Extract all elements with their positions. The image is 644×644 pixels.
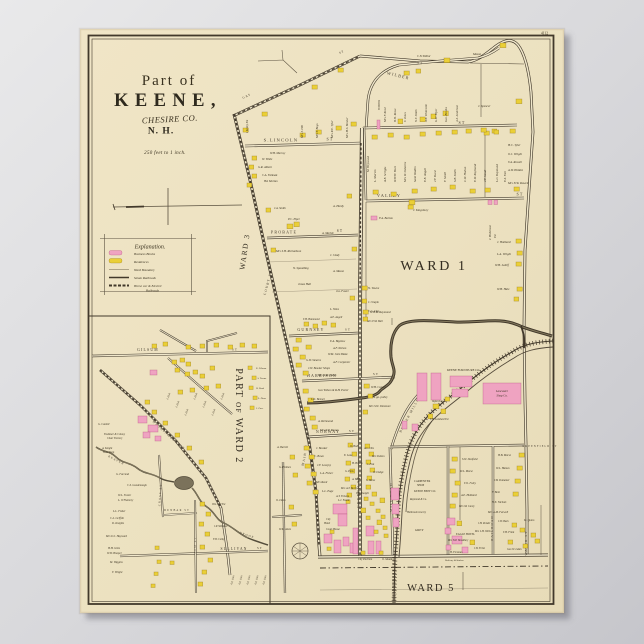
svg-text:J. Hubbard: J. Hubbard [497,240,511,244]
svg-text:N. H.: N. H. [148,127,174,137]
svg-text:H.H. Reese: H.H. Reese [393,108,397,123]
svg-text:VALLEY: VALLEY [377,193,401,198]
svg-text:Jonas Hall: Jonas Hall [298,282,311,286]
svg-text:Steam Railroads: Steam Railroads [134,276,156,280]
svg-text:E.E. Angell: E.E. Angell [423,168,427,183]
svg-text:T.H. Frink: T.H. Frink [503,531,515,534]
svg-text:Mrs W. Osborne: Mrs W. Osborne [403,161,407,183]
svg-text:S. Wares: S. Wares [366,479,375,482]
svg-text:O. Reed: O. Reed [256,387,265,390]
svg-text:A. Hardy: A. Hardy [332,204,345,208]
svg-text:Wm. Hill Est: Wm. Hill Est [212,503,226,506]
svg-text:Mrs S.H. Richardson: Mrs S.H. Richardson [275,249,302,253]
svg-text:N. Towne: N. Towne [367,286,380,290]
svg-text:J. Bowker: J. Bowker [316,446,328,450]
svg-text:Mrs M. Carey: Mrs M. Carey [458,505,475,508]
svg-text:ST: ST [345,328,351,332]
svg-text:W.H. Murray: W.H. Murray [270,151,286,155]
svg-text:GREY: GREY [415,528,424,532]
svg-text:J. Chapin: J. Chapin [368,301,379,304]
svg-text:J. Kingsbury: J. Kingsbury [413,208,429,212]
svg-text:G.R. Abbott: G.R. Abbott [258,165,272,169]
svg-text:C.C. Clay: C.C. Clay [368,310,380,313]
svg-text:Railroads: Railroads [145,289,160,293]
svg-text:W.L. Foster: W.L. Foster [118,494,132,497]
svg-text:WARD 1: WARD 1 [400,259,467,274]
svg-text:J.W. Bush: J.W. Bush [498,520,509,523]
svg-text:Part of: Part of [142,73,196,89]
svg-text:S.B. Smith: S.B. Smith [453,169,457,182]
svg-text:Mrs Dutton: Mrs Dutton [371,455,385,458]
svg-text:W.H.H. Beck: W.H.H. Beck [393,166,397,182]
svg-text:J.H. Pender: J.H. Pender [478,522,491,525]
svg-text:W.M. John Blake: W.M. John Blake [328,352,348,356]
svg-text:Mrs J. Hill: Mrs J. Hill [300,125,304,139]
svg-text:SCHOOL: SCHOOL [378,99,381,110]
svg-text:Mrs L.H. Wells: Mrs L.H. Wells [474,530,491,533]
svg-text:A. Knight: A. Knight [101,447,113,450]
svg-text:C.A. Falknak: C.A. Falknak [262,173,278,177]
svg-text:H. Freeman: H. Freeman [449,551,463,554]
svg-text:A.E. Angell: A.E. Angell [329,316,343,319]
svg-text:L.L. Fisher: L.L. Fisher [112,510,126,513]
svg-text:Faulkner & Colony: Faulkner & Colony [103,433,126,436]
svg-text:D. Knights: D. Knights [111,522,124,525]
svg-text:M. Heywood: M. Heywood [366,156,370,173]
svg-text:RAILROAD: RAILROAD [490,515,494,541]
svg-text:Mrs S. Bogs: Mrs S. Bogs [315,123,319,139]
svg-text:G.W. Piper: G.W. Piper [434,108,438,122]
svg-text:ST: ST [349,429,355,433]
svg-text:L.A. Fisher: L.A. Fisher [319,471,334,475]
svg-text:W.H. Hale: W.H. Hale [497,287,510,291]
svg-text:CARPENTER: CARPENTER [414,480,430,483]
svg-text:E. Lane: E. Lane [343,454,353,457]
svg-text:N. Spaulding: N. Spaulding [292,266,309,270]
svg-text:F. Bent: F. Bent [491,491,500,494]
svg-text:N.T. Smith: N.T. Smith [414,109,418,123]
svg-text:C.L. Griffith: C.L. Griffith [110,517,125,520]
svg-text:V.A. Rowell: V.A. Rowell [508,160,522,164]
svg-text:H.H. Giles: H.H. Giles [107,547,120,550]
svg-text:W. White: W. White [262,157,273,161]
svg-text:Explanation.: Explanation. [134,245,166,251]
svg-text:PROBATE: PROBATE [271,230,297,235]
svg-text:ST: ST [373,372,379,376]
svg-text:Hotel: Hotel [323,522,330,525]
svg-text:ELM ST: ELM ST [194,537,198,554]
svg-text:Chair Factory: Chair Factory [107,437,123,440]
svg-text:ST: ST [257,546,263,550]
svg-text:A.F. Carpenter: A.F. Carpenter [332,360,351,364]
svg-text:H.E. Nichols: H.E. Nichols [491,501,506,504]
svg-text:KEENE BEEF CO.: KEENE BEEF CO. [414,490,436,493]
svg-text:4112: 4112 [541,32,548,36]
svg-text:Mrs S.W. Dinsmore: Mrs S.W. Dinsmore [368,405,391,408]
svg-text:J. Carr: J. Carr [256,407,263,410]
svg-text:City: City [326,518,331,521]
svg-text:L.L. Page: L.L. Page [321,489,334,493]
svg-text:W.H. Lahiff: W.H. Lahiff [495,263,510,267]
svg-text:M. Wiggins: M. Wiggins [109,561,123,564]
svg-text:Residences: Residences [133,260,149,264]
svg-text:250 feet to 1 inch.: 250 feet to 1 inch. [144,151,186,156]
svg-text:O. Hall: O. Hall [350,445,358,448]
svg-text:Business Blocks: Business Blocks [134,252,156,256]
svg-text:F.H. Lombard Est: F.H. Lombard Est [429,418,449,421]
svg-text:A.E. Hubbard: A.E. Hubbard [460,494,477,497]
svg-text:L. Nims: L. Nims [329,307,340,311]
svg-text:Mrs A.M. Davis: Mrs A.M. Davis [317,373,337,377]
svg-text:J.F. Small: J.F. Small [483,170,487,182]
svg-text:J.A. Smith: J.A. Smith [274,206,286,210]
svg-text:Horse car & Electric: Horse car & Electric [133,284,162,288]
svg-text:Mrs Reed: Mrs Reed [315,480,328,484]
svg-text:E. Gilman: E. Gilman [255,367,267,370]
svg-text:Mrs F. Reed: Mrs F. Reed [383,107,387,123]
svg-text:Jos. Foster: Jos. Foster [336,289,350,293]
svg-text:W.L. Morse: W.L. Morse [460,470,474,473]
svg-text:G. Holmes: G. Holmes [279,466,291,469]
svg-text:J.F. Lovejoy: J.F. Lovejoy [317,463,332,467]
svg-text:SHOP: SHOP [417,484,425,487]
svg-text:C.S. Goodenough: C.S. Goodenough [127,484,147,487]
svg-text:Mrs N.P. Woodbury: Mrs N.P. Woodbury [447,539,469,542]
svg-text:J.W. Bowker Shops: J.W. Bowker Shops [308,366,331,370]
svg-text:O. Dean: O. Dean [276,499,286,502]
svg-text:ST: ST [417,61,424,66]
svg-text:Saml Wadlin: Saml Wadlin [413,166,417,182]
svg-text:Wm Dwight: Wm Dwight [356,492,369,495]
svg-text:G. Cardell: G. Cardell [98,423,110,426]
svg-text:A.T. Folsom: A.T. Folsom [335,495,349,498]
svg-text:Shoe Shop: Shoe Shop [103,451,115,454]
svg-text:G.W. Stearns: G.W. Stearns [306,358,322,362]
svg-text:E.S. Fall: E.S. Fall [503,171,507,183]
svg-text:Impervious: Impervious [431,400,444,403]
svg-text:H. Howes: H. Howes [351,462,363,465]
svg-text:O. Madden: O. Madden [382,558,395,561]
svg-text:Mrs F.M. Ball: Mrs F.M. Ball [366,320,383,323]
svg-text:Mrs M.S. Bonner: Mrs M.S. Bonner [345,117,349,139]
svg-text:WARD 5: WARD 5 [407,583,455,594]
svg-text:A. Richmond: A. Richmond [317,419,333,423]
svg-text:W.L. Haines: W.L. Haines [496,467,510,470]
svg-text:P.C. Piper: P.C. Piper [287,217,301,221]
svg-text:EAGLE HOTEL: EAGLE HOTEL [456,533,475,536]
svg-text:GILSUM: GILSUM [137,348,159,352]
svg-text:F.A. Barton: F.A. Barton [378,216,393,220]
svg-text:T.H. Hammond: T.H. Hammond [303,318,320,321]
svg-text:E.A. Bigelow: E.A. Bigelow [329,339,345,343]
svg-text:A.E. Scripps: A.E. Scripps [383,166,387,183]
svg-text:A.L. Whitcomb: A.L. Whitcomb [424,104,428,123]
svg-text:Lancaster: Lancaster [495,389,509,393]
svg-text:W.W. Hooper: W.W. Hooper [107,552,123,555]
svg-text:G. Farrand: G. Farrand [116,473,129,476]
svg-text:S.W. Dunfield: S.W. Dunfield [462,458,478,461]
svg-text:J. Clady: J. Clady [330,253,340,257]
svg-text:ST: ST [516,192,523,197]
svg-text:H.C. Tyler: H.C. Tyler [507,143,521,147]
svg-text:C.N.Wilbur: C.N.Wilbur [417,54,432,58]
svg-text:O.J. Wright: O.J. Wright [508,152,522,156]
svg-text:F.W. Colby: F.W. Colby [212,538,225,541]
svg-text:A. Marble: A. Marble [321,231,334,235]
svg-text:L. Marvin: L. Marvin [373,169,377,183]
svg-text:Mrs D.J. Hayward: Mrs D.J. Hayward [105,535,127,538]
svg-text:Raymond & Co.: Raymond & Co. [409,498,427,501]
svg-text:Shop Co.: Shop Co. [496,394,507,398]
svg-text:WATER ST: WATER ST [524,530,528,555]
svg-text:L.J. Fasett: L.J. Fasett [337,499,350,502]
svg-text:L.C. Raymond: L.C. Raymond [495,164,499,183]
svg-text:J. Dickinson: J. Dickinson [488,225,492,240]
svg-text:J.B. Duhamel: J.B. Duhamel [494,479,510,482]
svg-text:W. Dodge: W. Dodge [373,471,384,474]
svg-text:Railway & Station: Railway & Station [444,559,464,562]
svg-text:A. Barrett: A. Barrett [276,446,288,449]
svg-text:L.A. Wright: L.A. Wright [496,252,511,256]
svg-text:City Pavilion: City Pavilion [358,558,373,561]
svg-text:DUNBAR ST: DUNBAR ST [164,509,190,512]
svg-text:L. Drew: L. Drew [257,397,266,400]
svg-text:C.W. Holton: C.W. Holton [463,166,467,182]
svg-text:J. Spencer: J. Spencer [478,104,491,108]
svg-text:A. Ball: A. Ball [351,478,360,481]
svg-text:Geo. Brooks: Geo. Brooks [444,106,448,122]
svg-text:Mrs A.T. Berry: Mrs A.T. Berry [340,487,358,490]
svg-text:SULLIVAN: SULLIVAN [220,547,247,551]
svg-text:J.F. Reed: J.F. Reed [433,170,437,182]
svg-text:J. Fisk: J. Fisk [367,463,375,466]
svg-text:Hd. Morlan: Hd. Morlan [263,179,278,183]
svg-text:A.S. Anderson: A.S. Anderson [455,104,459,123]
svg-text:Mrs N.W. Rowell: Mrs N.W. Rowell [507,181,529,185]
svg-text:A. go. pulley: A. go. pulley [372,395,388,399]
svg-text:H.B. Morse: H.B. Morse [497,454,512,457]
svg-text:Holbrook Grocery: Holbrook Grocery [406,511,427,514]
svg-text:G. Petts: G. Petts [345,470,354,473]
svg-text:J.W. Frink: J.W. Frink [474,547,486,550]
svg-text:M. Quinn: M. Quinn [523,519,535,522]
svg-text:ST: ST [458,120,465,125]
svg-text:Mrs A.M. Farwell: Mrs A.M. Farwell [487,511,508,514]
svg-text:T.O. Foley: T.O. Foley [464,482,477,485]
svg-text:KEENE,: KEENE, [114,91,222,111]
svg-text:A.C. Otis: A.C. Otis [363,447,374,450]
svg-text:Court House: Court House [326,528,341,531]
svg-text:PART OF WARD 2: PART OF WARD 2 [233,368,244,464]
svg-text:Mrs N.P. Mason: Mrs N.P. Mason [319,428,339,432]
svg-text:Est: Est [494,234,497,239]
svg-text:L.K. Benner: L.K. Benner [310,397,326,401]
svg-text:A.W. Holden: A.W. Holden [507,168,524,172]
svg-text:GREENFIELD ST: GREENFIELD ST [522,445,557,448]
svg-text:Mrs R.E. Tyler: Mrs R.E. Tyler [330,120,334,139]
svg-text:A. Towne: A. Towne [256,377,267,380]
svg-text:J.P. Wellman: J.P. Wellman [214,525,228,528]
svg-text:F. Smith: F. Smith [443,171,447,183]
svg-text:Mason: Mason [472,52,482,56]
svg-text:E.W. Raymond: E.W. Raymond [473,163,477,183]
svg-text:A.F. Nelson: A.F. Nelson [332,346,347,350]
svg-text:W.K. Ames: W.K. Ames [279,528,291,531]
svg-text:Geo W. Lakin: Geo W. Lakin [507,548,522,551]
svg-text:Geo Wilson & R.H. Porter: Geo Wilson & R.H. Porter [318,388,350,392]
svg-text:C. Bown: C. Bown [314,454,325,458]
svg-text:L. O'Flaherty: L. O'Flaherty [117,499,134,502]
svg-text:V. Jones: V. Jones [403,111,407,122]
svg-text:KEENE FURNITURE CO.: KEENE FURNITURE CO. [447,368,480,372]
svg-text:Ward Boundary: Ward Boundary [134,268,155,272]
svg-text:W.H. Cooper: W.H. Cooper [371,385,387,389]
svg-text:GURNSEY: GURNSEY [297,327,324,332]
svg-text:s Kelley Est: s Kelley Est [246,120,249,133]
svg-text:A. Mason: A. Mason [332,269,345,273]
svg-text:ST: ST [337,229,344,233]
svg-text:S.LINCOLN: S.LINCOLN [264,138,299,143]
svg-text:F. Wright: F. Wright [111,571,123,574]
